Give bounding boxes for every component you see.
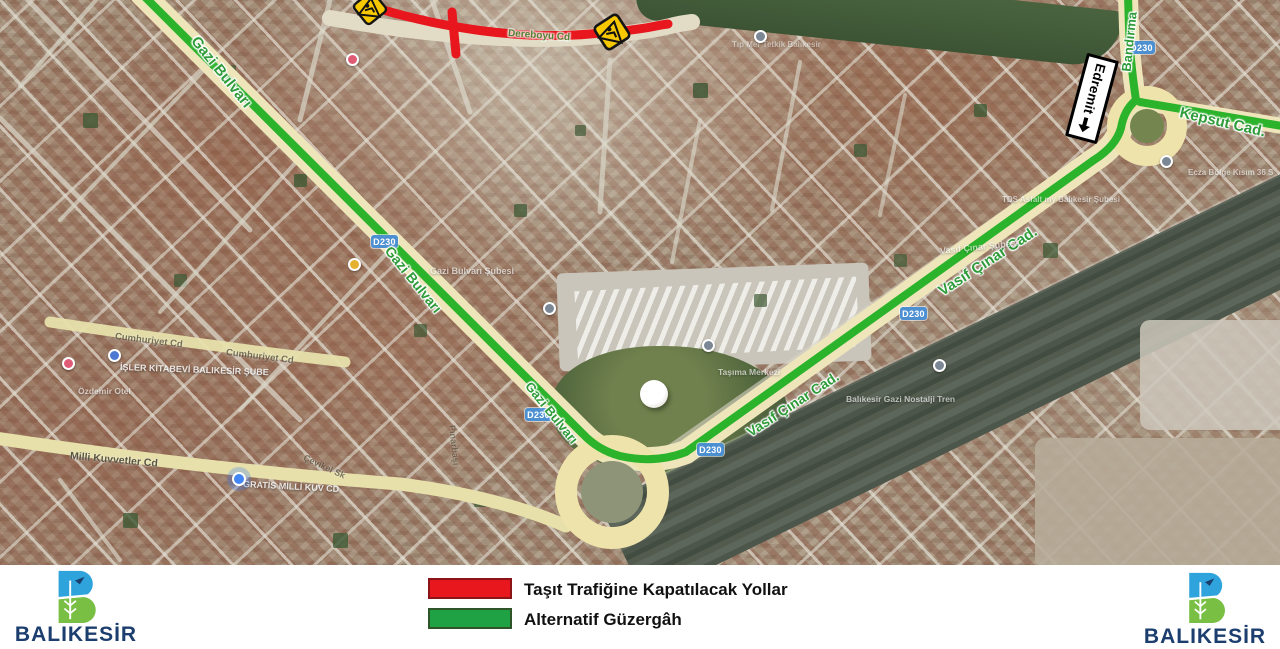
mosque-dome <box>640 380 668 408</box>
road-shield-d230: D230 <box>900 307 927 320</box>
balikesir-logo-text: BALIKESİR <box>1135 625 1275 649</box>
poi-pin-gray <box>702 339 715 352</box>
parked-buses <box>574 277 859 362</box>
road-closure-announcement: { "legend": { "items": [ { "swatch_color… <box>0 0 1280 640</box>
legend-label-alternative: Alternatif Güzergâh <box>524 610 682 630</box>
buildings-patch-east <box>1140 320 1280 430</box>
satellite-map: D230 D230 D230 D230 D230 Gazi Bulvarı Ga… <box>0 0 1280 565</box>
footer-band: BALIKESİR Taşıt Trafiğine Kapatılacak Yo… <box>0 565 1280 640</box>
balikesir-logo <box>1178 571 1232 623</box>
poi-pin-gray <box>933 359 946 372</box>
location-dot <box>232 472 246 486</box>
poi-label-gazi-subesi: Gazi Bulvarı Şubesi <box>430 266 514 276</box>
poi-pin-gray <box>754 30 767 43</box>
poi-label-ozdemir-otel: Özdemir Otel <box>78 386 131 396</box>
roadwork-warning-sign <box>346 0 394 32</box>
poi-label-nostalji-tren: Balıkesir Gazi Nostalji Tren <box>846 394 955 404</box>
buildings-patch-southeast <box>1035 438 1280 565</box>
road-shield-d230: D230 <box>697 443 724 456</box>
poi-pin-blue <box>108 349 121 362</box>
poi-pin-pink <box>62 357 75 370</box>
poi-pin-gray <box>543 302 556 315</box>
poi-label-ecza: Ecza Bölge Kısım 36 S <box>1188 168 1273 177</box>
poi-pin-gray <box>1160 155 1173 168</box>
legend-label-closed: Taşıt Trafiğine Kapatılacak Yollar <box>524 580 788 600</box>
balikesir-logo <box>46 569 104 623</box>
edremit-sign-label: Edremit <box>1081 62 1109 116</box>
poi-pin-pink <box>346 53 359 66</box>
roadwork-warning-sign <box>584 4 641 61</box>
balikesir-logo-text: BALIKESİR <box>6 623 146 647</box>
poi-label-tds: TDS Asfalt my Balıkesir Şubesi <box>1002 195 1120 204</box>
legend-swatch-closed <box>428 578 512 599</box>
poi-label-tip-merkezi: Tıp Mer Tetkik Balıkesir <box>732 40 821 49</box>
poi-label-tasima-merkezi: Taşıma Merkezi <box>718 367 780 377</box>
poi-pin-yellow <box>348 258 361 271</box>
direction-arrow-icon <box>1076 115 1094 135</box>
legend-swatch-alternative <box>428 608 512 629</box>
